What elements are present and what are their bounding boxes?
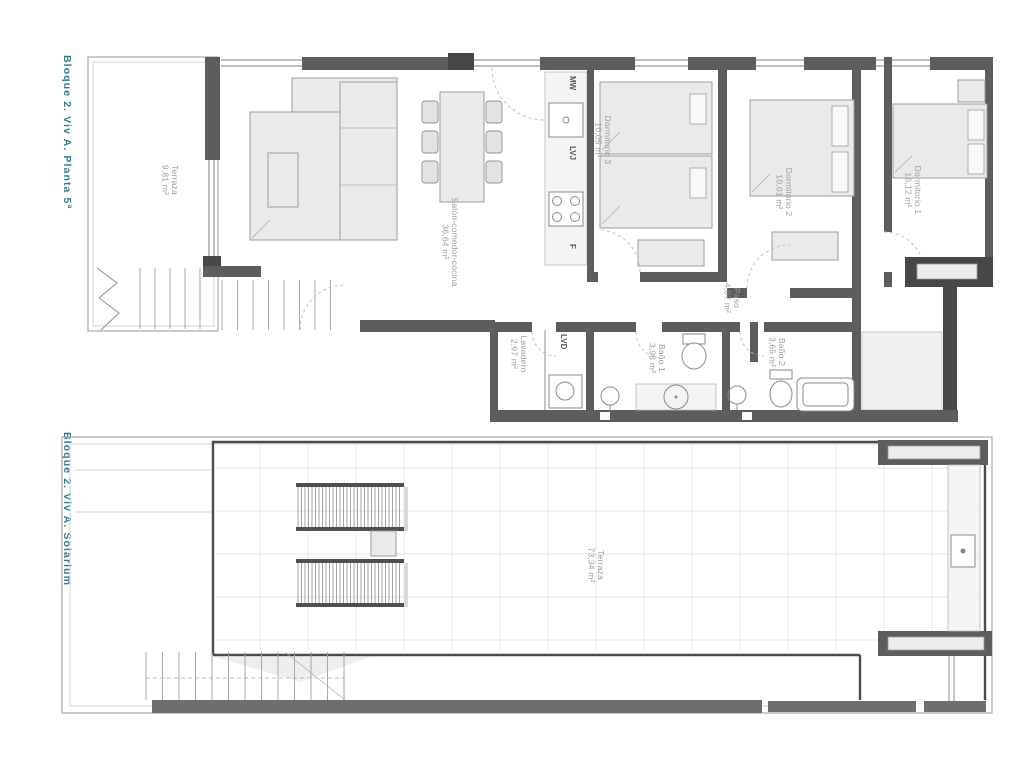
plan-solarium: Bloque 2. Viv A. Solarium: [61, 432, 992, 713]
dining-chair: [486, 101, 502, 123]
room-label-bano1: Baño 1 3,98 m²: [648, 343, 668, 373]
bench-dorm2: [772, 232, 838, 260]
room-area: 10,05 m²: [594, 122, 604, 157]
beds-dorm3: [600, 82, 712, 266]
room-label-terraza-solarium: Terraza 73,34 m²: [587, 547, 607, 582]
dining-chair: [486, 161, 502, 183]
room-name: Paso: [732, 288, 742, 308]
label-washer: LVD: [559, 334, 568, 350]
bench-dorm3: [638, 240, 704, 266]
kitchen-sink: [549, 103, 583, 137]
room-label-dorm3: Dormitorio 3 10,05 m²: [594, 116, 614, 165]
room-name: Dormitorio 2: [784, 168, 794, 217]
room-label-lavadero: Lavadero 2,97 m²: [510, 335, 530, 372]
pergola-2: [296, 559, 408, 607]
door-arc-lavadero: [532, 332, 556, 356]
kitchen: MW LVJ F: [545, 57, 594, 282]
spa-square: [371, 531, 396, 556]
niche-sink: [728, 386, 746, 410]
room-label-dorm1: Dormitorio 1 16,12 m²: [904, 166, 924, 215]
side-label-solarium: Bloque 2. Viv A. Solarium: [61, 432, 73, 586]
room-area: 9,81 m²: [161, 165, 171, 195]
terraza-railing: [88, 57, 218, 331]
door-arc-stairs: [300, 285, 345, 330]
room-name: Dormitorio 3: [603, 116, 613, 165]
right-service-walls: [862, 257, 993, 410]
closet-dorm1: [958, 80, 985, 102]
plan-planta5: Bloque 2. Viv A. Planta 5ª: [61, 53, 993, 422]
room-label-terraza5: Terraza 9,81 m²: [161, 165, 181, 195]
room-label-paso: Paso 4,07 m²: [723, 283, 743, 313]
outer-outline: [62, 437, 992, 713]
toilet-bano2: [770, 370, 792, 379]
room-area: 16,12 m²: [904, 172, 914, 207]
side-label-planta5: Bloque 2. Viv A. Planta 5ª: [61, 55, 73, 209]
lavadero-fixtures: LVD: [532, 330, 582, 410]
bed-dorm2: [750, 100, 854, 260]
kitchen-counter: [545, 72, 587, 265]
dining-table: [422, 92, 502, 202]
label-microwave: MW: [568, 76, 577, 91]
room-label-salon: Salón-comedor-cocina 36,64 m²: [441, 197, 461, 286]
room-name: Dormitorio 1: [913, 166, 923, 215]
room-name: Terraza: [170, 165, 180, 195]
room-label-bano2: Baño 2 3,65 m²: [768, 337, 788, 367]
bottom-wall: [152, 700, 986, 713]
floorplan-page: Bloque 2. Viv A. Planta 5ª: [0, 0, 1024, 768]
door-arc-dorm3: [598, 230, 640, 272]
side-label-solarium-text: Bloque 2. Viv A. Solarium: [61, 432, 73, 586]
room-area: 73,34 m²: [587, 547, 597, 582]
room-area: 3,65 m²: [768, 337, 778, 367]
room-name: Baño 2: [777, 338, 787, 366]
room-area: 36,64 m²: [441, 224, 451, 259]
room-name: Salón-comedor-cocina: [450, 197, 460, 286]
room-name: Baño 1: [657, 344, 667, 372]
room-area: 10,01 m²: [775, 174, 785, 209]
coffee-table: [268, 153, 298, 207]
room-name: Terraza: [596, 550, 606, 580]
label-fridge: F: [568, 244, 577, 249]
washing-machine: [549, 375, 582, 408]
room-area: 4,07 m²: [723, 283, 733, 313]
dining-chair: [486, 131, 502, 153]
dining-chair: [422, 131, 438, 153]
room-label-dorm2: Dormitorio 2 10,01 m²: [775, 168, 795, 217]
planter-top: [878, 440, 988, 465]
pergola-1: [296, 483, 408, 531]
pedestal-sink-bano1: [601, 387, 619, 405]
stairs-terraza: [140, 268, 200, 329]
dining-chair: [422, 101, 438, 123]
planter-bottom: [878, 631, 992, 656]
bed-dorm1: [893, 80, 987, 178]
dining-chair: [422, 161, 438, 183]
wall-salon-bottom: [360, 320, 495, 332]
room-area: 3,98 m²: [648, 343, 658, 373]
room-area: 2,97 m²: [510, 339, 520, 369]
floorplan-canvas: Bloque 2. Viv A. Planta 5ª: [0, 0, 1024, 768]
label-dishwasher: LVJ: [568, 146, 577, 160]
room-name: Lavadero: [519, 335, 529, 372]
stair-break-line: [97, 268, 119, 330]
stairs-salon: [222, 280, 331, 330]
side-label-planta5-text: Bloque 2. Viv A. Planta 5ª: [61, 55, 73, 209]
outdoor-sink: [951, 535, 975, 567]
